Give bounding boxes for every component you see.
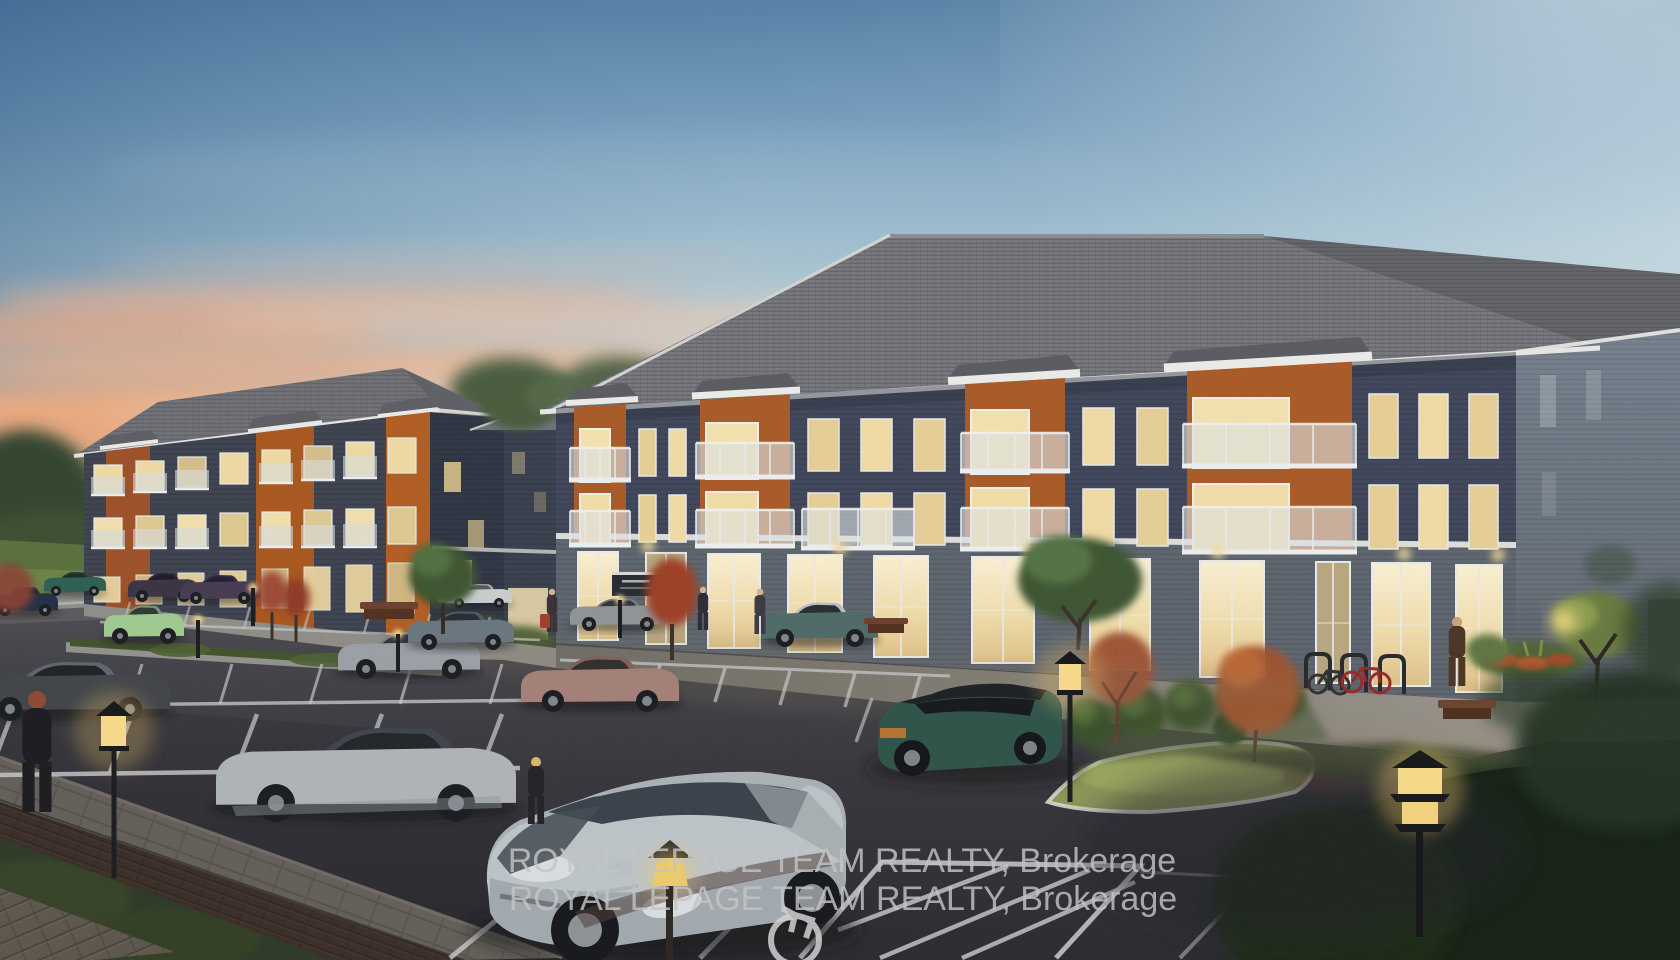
svg-text:ROYAL LEPAGE TEAM REALTY, Brok: ROYAL LEPAGE TEAM REALTY, Brokerage: [509, 880, 1177, 918]
svg-text:ROYAL LEPAGE TEAM REALTY, Brok: ROYAL LEPAGE TEAM REALTY, Brokerage: [508, 842, 1176, 880]
